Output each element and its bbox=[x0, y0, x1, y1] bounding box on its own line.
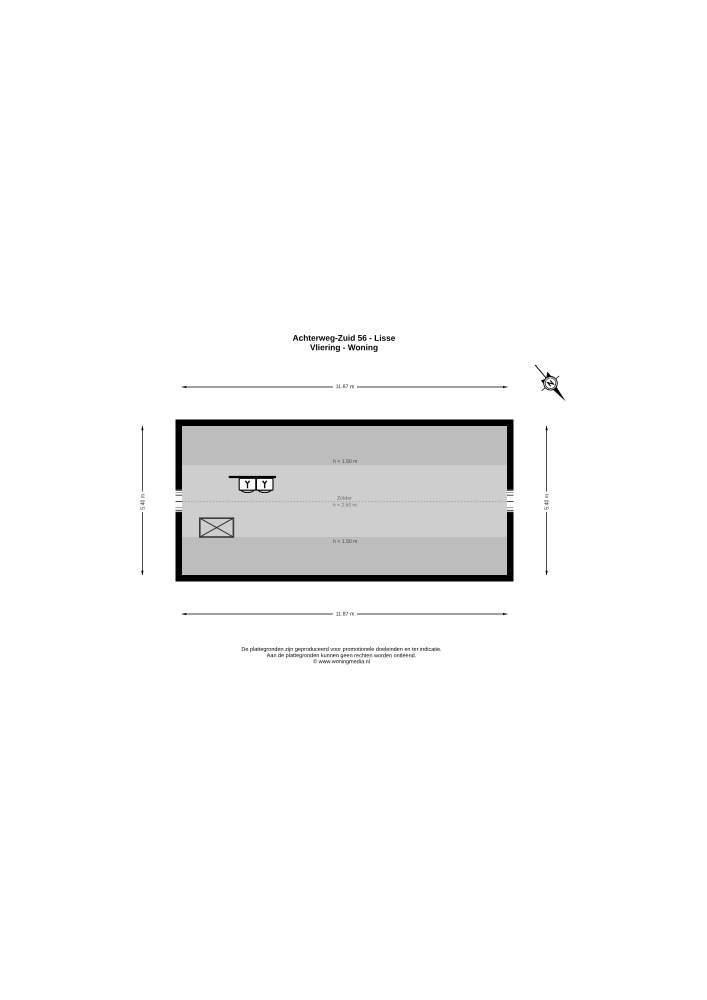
svg-text:De plattegronden zijn geproduc: De plattegronden zijn geproduceerd voor … bbox=[241, 647, 442, 653]
svg-text:© www.woningmedia.nl: © www.woningmedia.nl bbox=[313, 658, 370, 665]
svg-text:h < 1.50 m: h < 1.50 m bbox=[333, 459, 357, 465]
svg-text:5.40 m: 5.40 m bbox=[141, 494, 147, 510]
svg-text:5.40 m: 5.40 m bbox=[545, 494, 551, 510]
svg-text:11.87 m: 11.87 m bbox=[336, 384, 355, 390]
svg-text:Vliering - Woning: Vliering - Woning bbox=[310, 342, 378, 352]
svg-text:11.87 m: 11.87 m bbox=[336, 611, 355, 617]
svg-text:h < 1.50 m: h < 1.50 m bbox=[333, 539, 357, 545]
svg-text:Zolder: Zolder bbox=[337, 496, 352, 502]
svg-text:h = 2.50 m: h = 2.50 m bbox=[333, 502, 357, 508]
